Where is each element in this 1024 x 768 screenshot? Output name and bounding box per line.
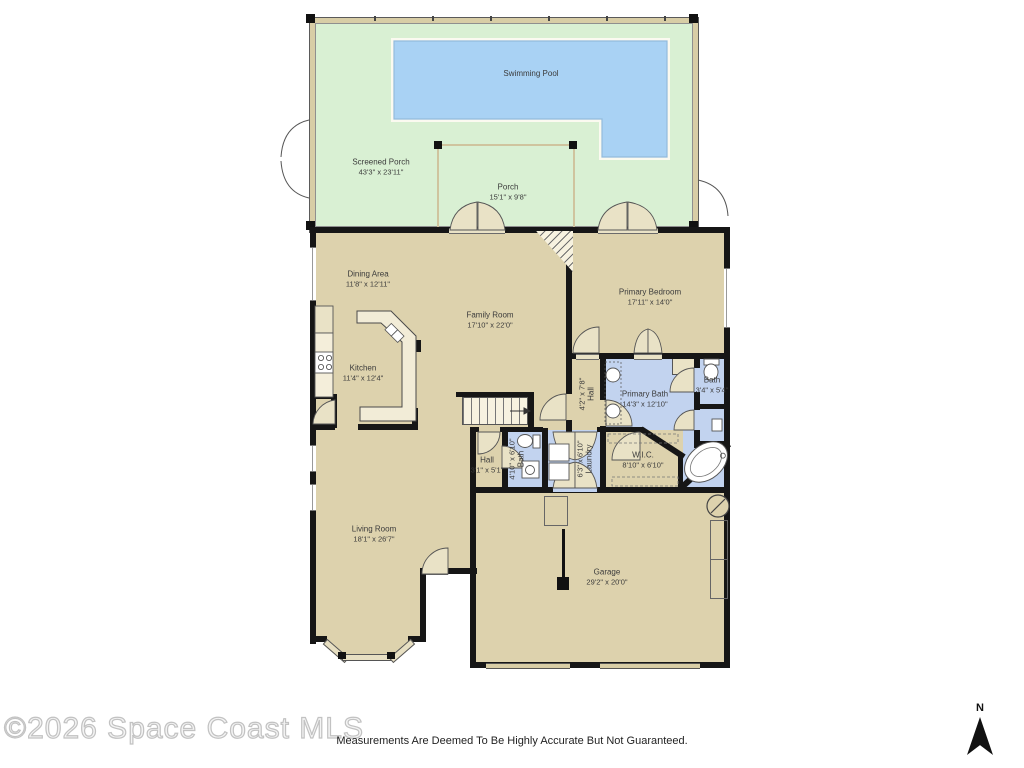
door-opening — [634, 354, 662, 360]
wall — [412, 408, 418, 430]
window — [724, 268, 730, 328]
wall — [415, 340, 421, 352]
wall — [542, 428, 548, 492]
sliding-door-opening — [449, 228, 505, 234]
wall — [470, 427, 479, 432]
door-gap — [553, 488, 597, 492]
compass: N — [958, 702, 1002, 762]
porch-area — [437, 144, 575, 232]
porch-corner-post — [434, 141, 442, 149]
garage-post — [557, 577, 569, 590]
door-gap — [694, 410, 700, 430]
wall — [470, 428, 476, 668]
wall-post — [338, 652, 346, 659]
compass-north-label: N — [976, 702, 984, 714]
disclaimer-text: Measurements Are Deemed To Be Highly Acc… — [0, 735, 1024, 747]
wall — [600, 428, 606, 492]
floor-garage — [473, 492, 727, 666]
north-arrow-icon — [967, 717, 993, 755]
door-opening — [576, 354, 599, 360]
porch-corner-post — [306, 14, 315, 23]
floor-plan-page: Swimming Pool Screened Porch 43'3" x 23'… — [0, 0, 1024, 768]
wall — [470, 487, 730, 493]
garage-door — [486, 663, 570, 669]
floor-laundry — [545, 430, 601, 490]
sliding-door-opening — [598, 228, 658, 234]
garage-storage — [544, 496, 568, 526]
window — [310, 247, 316, 301]
screen-door-arc — [698, 180, 728, 216]
wall — [313, 394, 337, 399]
wall — [528, 392, 534, 432]
wall — [694, 441, 730, 446]
door-gap — [502, 446, 508, 468]
screen-posts — [318, 16, 690, 21]
garage-post-line — [562, 529, 565, 581]
garage-shelf — [710, 520, 728, 560]
floor-living-lower — [313, 574, 425, 640]
wall — [331, 394, 337, 428]
door-gap — [566, 394, 572, 420]
wall — [694, 404, 730, 409]
screen-door-arc — [281, 120, 309, 157]
garage-shelf — [710, 559, 728, 599]
stairs-lower — [462, 397, 528, 425]
wall-post — [387, 652, 395, 659]
door-gap — [600, 400, 606, 426]
floor-living-mid — [313, 492, 473, 574]
floor-tub-nook — [683, 430, 725, 490]
garage-door — [600, 663, 700, 669]
floor-hall-bath — [505, 430, 543, 490]
screen-door-arc — [281, 161, 309, 198]
door-gap — [694, 368, 700, 392]
porch-corner-post — [689, 14, 698, 23]
bay-window — [342, 654, 393, 661]
wall — [358, 424, 418, 430]
porch-corner-post — [569, 141, 577, 149]
window — [310, 445, 316, 472]
linen-closet — [672, 358, 696, 375]
window — [310, 484, 316, 511]
wall — [310, 227, 730, 233]
wall — [420, 574, 426, 640]
front-door-opening — [426, 569, 448, 575]
